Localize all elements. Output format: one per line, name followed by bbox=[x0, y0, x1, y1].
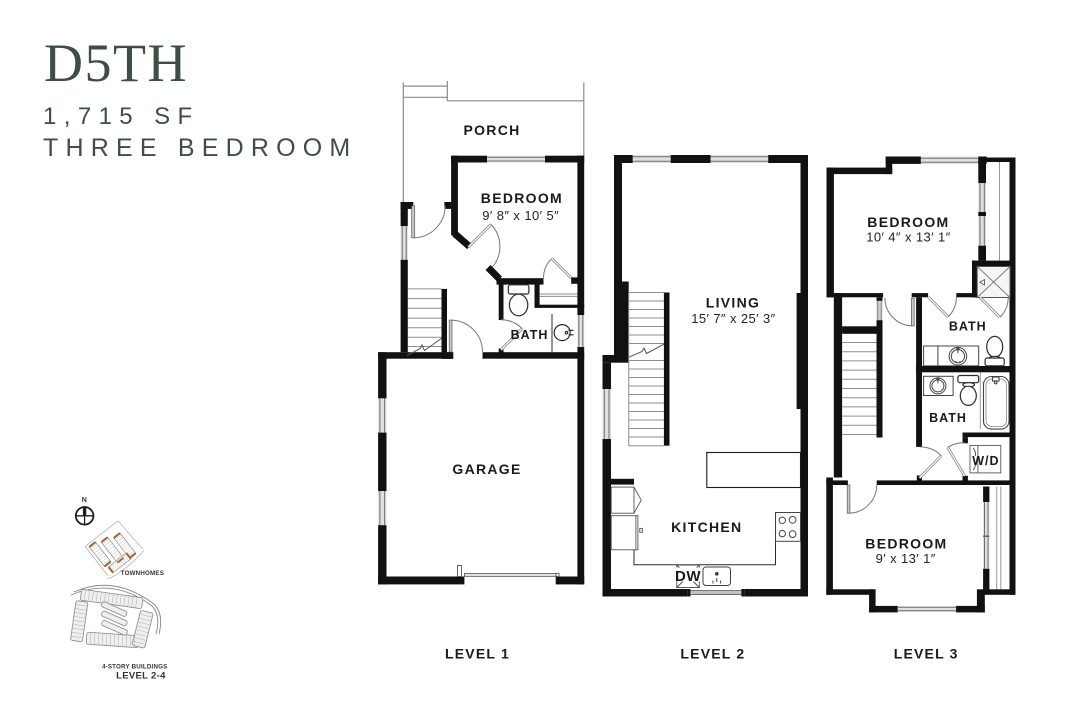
svg-text:KITCHEN: KITCHEN bbox=[671, 519, 742, 535]
svg-text:BATH: BATH bbox=[511, 328, 549, 342]
svg-text:THREE BEDROOM: THREE BEDROOM bbox=[43, 134, 357, 162]
svg-text:9′ 8″ x 10′ 5″: 9′ 8″ x 10′ 5″ bbox=[482, 208, 559, 223]
svg-text:LIVING: LIVING bbox=[706, 295, 760, 311]
svg-text:BATH: BATH bbox=[949, 320, 987, 334]
svg-text:PORCH: PORCH bbox=[463, 122, 520, 138]
svg-text:LEVEL 1: LEVEL 1 bbox=[445, 646, 510, 662]
svg-text:GARAGE: GARAGE bbox=[452, 461, 521, 477]
svg-text:N: N bbox=[82, 497, 87, 504]
svg-text:DW: DW bbox=[675, 568, 701, 585]
svg-text:BEDROOM: BEDROOM bbox=[865, 535, 947, 551]
svg-text:9′ x 13′ 1″: 9′ x 13′ 1″ bbox=[876, 551, 936, 566]
svg-text:10′ 4″ x 13′ 1″: 10′ 4″ x 13′ 1″ bbox=[866, 230, 950, 245]
svg-text:4-STORY BUILDINGS: 4-STORY BUILDINGS bbox=[102, 664, 168, 671]
svg-text:BEDROOM: BEDROOM bbox=[481, 190, 563, 206]
svg-text:TOWNHOMES: TOWNHOMES bbox=[121, 570, 164, 577]
svg-text:W/D: W/D bbox=[972, 454, 999, 468]
svg-text:BEDROOM: BEDROOM bbox=[867, 214, 949, 230]
svg-text:1,715 SF: 1,715 SF bbox=[43, 103, 200, 130]
svg-text:LEVEL 2-4: LEVEL 2-4 bbox=[116, 671, 166, 682]
svg-text:BATH: BATH bbox=[929, 411, 967, 425]
svg-text:D5TH: D5TH bbox=[44, 33, 188, 93]
svg-text:LEVEL 3: LEVEL 3 bbox=[894, 646, 959, 662]
svg-text:15′ 7″ x 25′ 3″: 15′ 7″ x 25′ 3″ bbox=[691, 311, 775, 326]
svg-text:LEVEL 2: LEVEL 2 bbox=[680, 646, 745, 662]
